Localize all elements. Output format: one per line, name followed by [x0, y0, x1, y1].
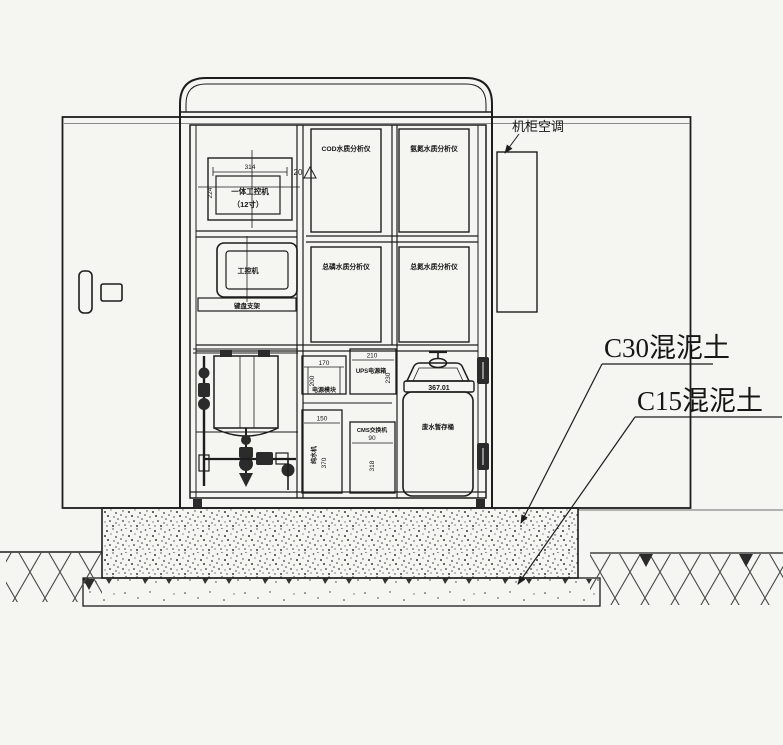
switch-dim-height: 318	[369, 460, 376, 471]
ac-label: 机柜空调	[512, 119, 564, 134]
valve-icon	[198, 398, 210, 410]
ipc-dim-width: 314	[245, 164, 256, 171]
switch-num: 90	[368, 435, 376, 442]
ups-label: UPS电源箱	[356, 367, 386, 375]
pipe-fitting-icon	[256, 452, 273, 465]
purifier-label: 纯水机	[310, 446, 318, 464]
tank-label: 废水暂存桶	[422, 422, 454, 431]
soil-hatch-left	[0, 552, 102, 602]
purifier-dim-height: 370	[321, 457, 328, 468]
cabinet-foot	[476, 499, 485, 507]
ipc-label: 一体工控机	[231, 186, 269, 196]
ipc-dim-height: 224	[207, 187, 214, 198]
pump-icon	[239, 447, 253, 458]
power-box-dim-width: 170	[319, 360, 330, 367]
analyzer-tn-label: 总氮水质分析仪	[410, 262, 458, 271]
switch-label: CMS交换机	[357, 426, 387, 434]
ups-dim-height: 230	[385, 372, 392, 383]
c30-slab	[102, 508, 578, 578]
analyzer-nh3n-label: 氨氮水质分析仪	[410, 144, 458, 153]
valve-icon	[199, 368, 210, 379]
analyzer-tp-label: 总磷水质分析仪	[322, 262, 370, 271]
shelf-label: 键盘支架	[233, 301, 261, 310]
analyzer-cod-label: COD水质分析仪	[321, 144, 370, 153]
cabinet-foot	[193, 499, 202, 507]
c30-label: C30混泥土	[604, 333, 730, 363]
purifier-dim-width: 150	[317, 416, 328, 423]
c15-label: C15混泥土	[637, 386, 763, 416]
soil-hatch-right	[590, 553, 783, 605]
monitor-label: 工控机	[238, 266, 259, 275]
c15-layer	[83, 578, 600, 606]
engineering-drawing: 314 224 一体工控机 （12寸） 20 工控机 键盘支架 COD水质分析仪…	[0, 0, 783, 745]
tank-number: 367.01	[428, 385, 450, 392]
ups-dim-width: 210	[367, 353, 378, 360]
valve-icon	[198, 383, 210, 397]
slope-mark-value: 20	[294, 168, 303, 177]
ipc-size-label: （12寸）	[233, 199, 264, 209]
drain-valve-icon	[241, 435, 251, 445]
power-box-label: 电源模块	[312, 386, 337, 394]
power-box-dim-height: 200	[309, 375, 316, 386]
